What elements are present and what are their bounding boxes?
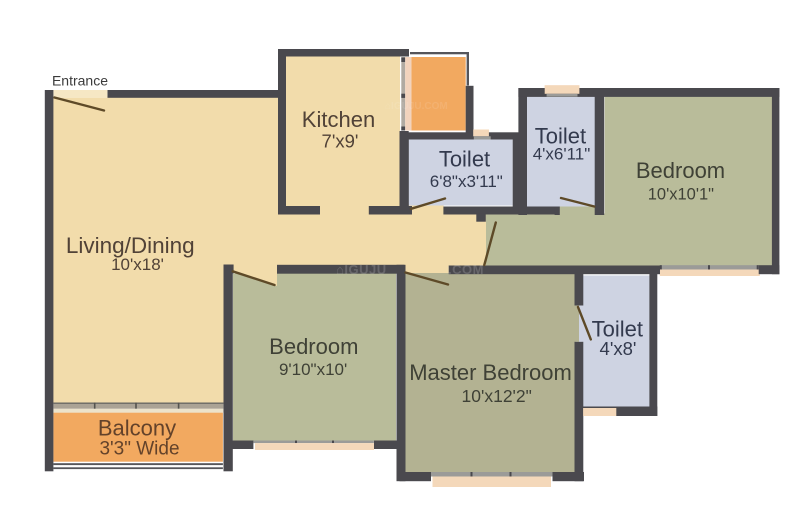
svg-text:Bedroom: Bedroom [636, 158, 725, 183]
svg-text:10'x10'1": 10'x10'1" [648, 186, 714, 204]
svg-text:4'x6'11": 4'x6'11" [533, 145, 591, 164]
svg-text:10'x12'2": 10'x12'2" [462, 386, 532, 406]
svg-text:7'x9': 7'x9' [322, 131, 359, 152]
svg-text:Master Bedroom: Master Bedroom [409, 360, 572, 385]
svg-text:⌂IGUJU.COM: ⌂IGUJU.COM [385, 101, 448, 112]
svg-text:Bedroom: Bedroom [269, 334, 358, 359]
svg-text:4'x8': 4'x8' [600, 338, 637, 359]
svg-text:Balcony: Balcony [98, 416, 176, 441]
svg-text:Entrance: Entrance [52, 73, 108, 89]
svg-text:⌂IGUJU: ⌂IGUJU [336, 262, 387, 277]
svg-text:9'10"x10': 9'10"x10' [279, 360, 347, 379]
svg-text:10'x18': 10'x18' [111, 255, 164, 274]
svg-text:3'3" Wide: 3'3" Wide [99, 439, 179, 460]
svg-text:.COM: .COM [448, 262, 484, 277]
svg-text:Kitchen: Kitchen [302, 107, 375, 132]
svg-text:6'8"x3'11": 6'8"x3'11" [430, 172, 503, 191]
svg-text:Toilet: Toilet [439, 146, 490, 171]
